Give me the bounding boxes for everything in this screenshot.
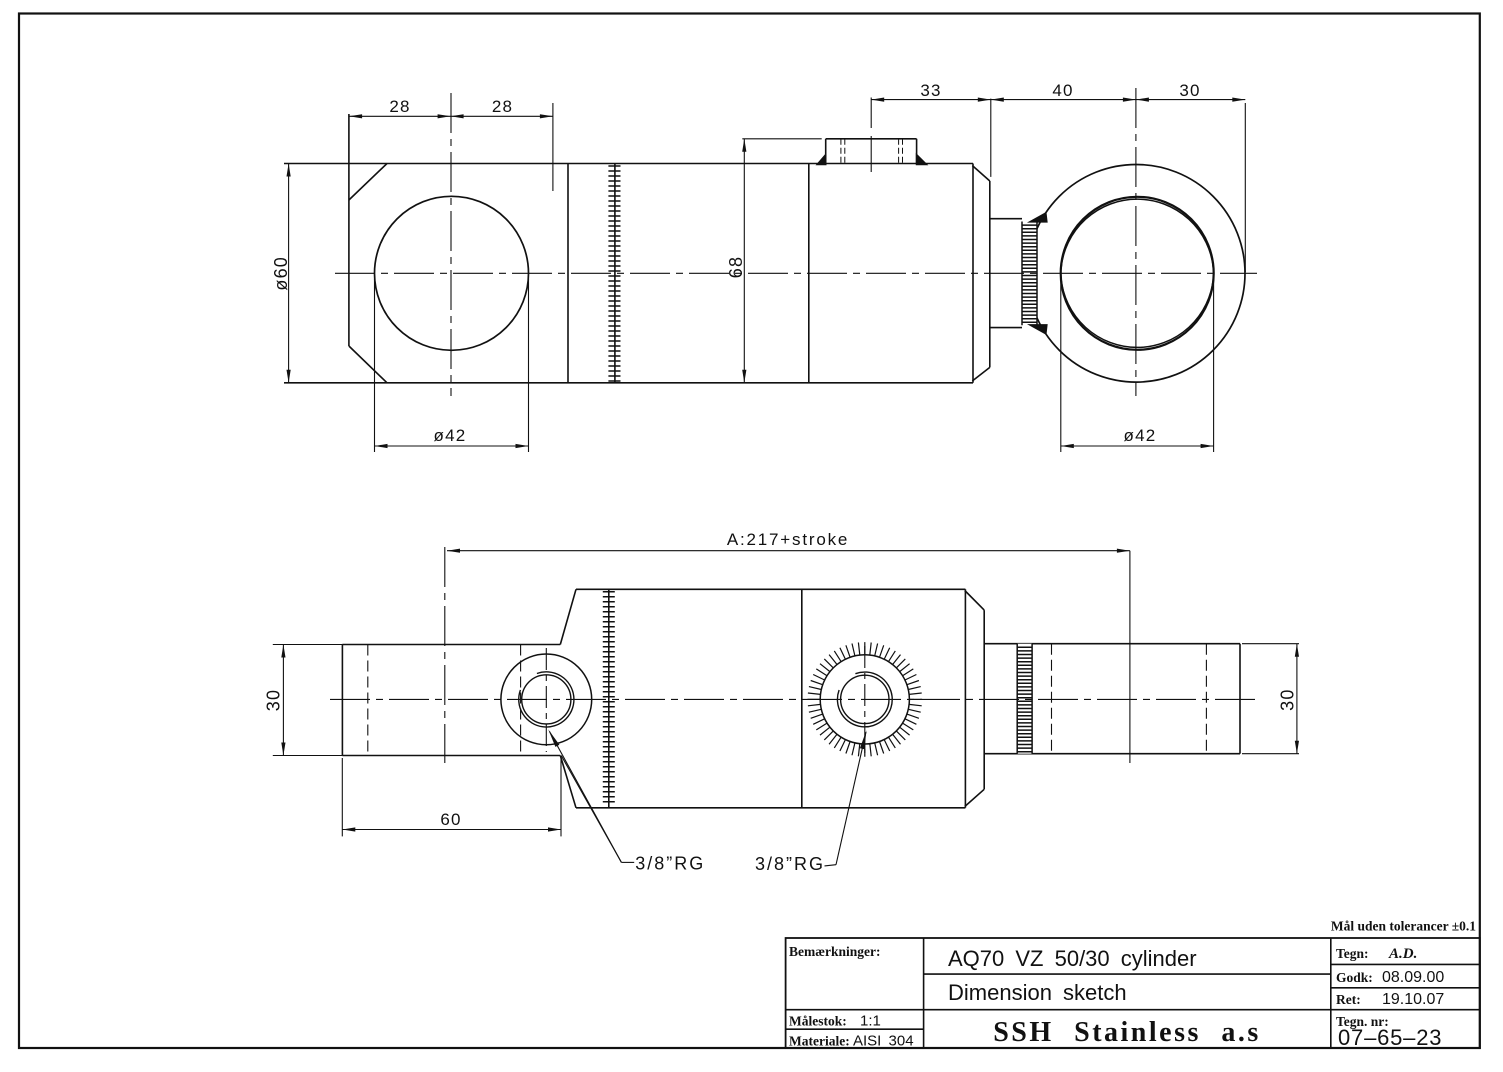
- svg-text:Bemærkninger:: Bemærkninger:: [789, 944, 881, 959]
- svg-text:Ret:: Ret:: [1336, 992, 1361, 1007]
- svg-text:33: 33: [920, 81, 941, 100]
- svg-text:68: 68: [726, 256, 746, 278]
- svg-text:ø60: ø60: [271, 256, 291, 291]
- svg-text:30: 30: [1278, 688, 1298, 710]
- svg-text:A.D.: A.D.: [1388, 946, 1417, 962]
- svg-text:60: 60: [440, 810, 461, 829]
- svg-text:08.09.00: 08.09.00: [1382, 969, 1444, 986]
- svg-text:AQ70 VZ 50/30 cylinder: AQ70 VZ 50/30 cylinder: [948, 946, 1197, 971]
- svg-text:AISI 304: AISI 304: [853, 1033, 914, 1050]
- svg-text:07–65–23: 07–65–23: [1338, 1025, 1442, 1050]
- svg-text:1:1: 1:1: [860, 1013, 881, 1030]
- svg-text:Målestok:: Målestok:: [789, 1014, 847, 1029]
- svg-text:ø42: ø42: [434, 426, 467, 445]
- svg-text:40: 40: [1052, 81, 1073, 100]
- svg-text:28: 28: [492, 97, 513, 116]
- svg-text:Materiale:: Materiale:: [789, 1034, 850, 1049]
- svg-text:Godk:: Godk:: [1336, 970, 1373, 985]
- svg-text:Dimension sketch: Dimension sketch: [948, 980, 1127, 1005]
- svg-text:3/8”RG: 3/8”RG: [755, 854, 825, 874]
- svg-text:A:217+stroke: A:217+stroke: [727, 530, 849, 549]
- svg-text:19.10.07: 19.10.07: [1382, 991, 1444, 1008]
- svg-text:3/8”RG: 3/8”RG: [635, 854, 705, 874]
- svg-text:Tegn:: Tegn:: [1336, 946, 1369, 961]
- svg-text:28: 28: [389, 97, 410, 116]
- svg-text:30: 30: [1179, 81, 1200, 100]
- svg-text:Mål uden tolerancer ±0.1: Mål uden tolerancer ±0.1: [1331, 919, 1476, 934]
- svg-text:ø42: ø42: [1124, 426, 1157, 445]
- svg-text:30: 30: [264, 689, 284, 711]
- svg-text:SSH Stainless a.s: SSH Stainless a.s: [993, 1017, 1261, 1048]
